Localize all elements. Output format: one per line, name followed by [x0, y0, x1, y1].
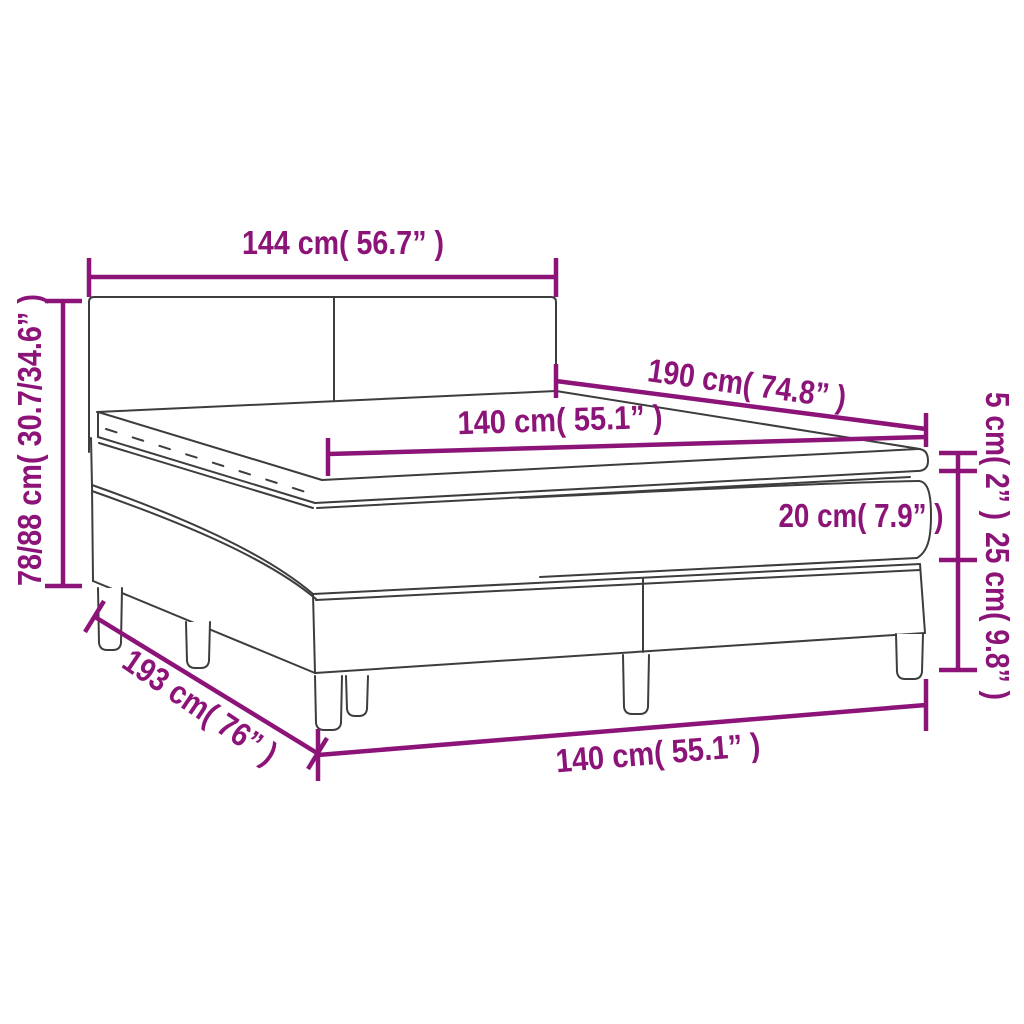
dimension-diagram: 144 cm( 56.7” ) 78/88 cm( 30.7/34.6” ) 1… [0, 0, 1024, 1024]
base-foot-bottom-edge [315, 633, 925, 673]
dim-line-right-stack [939, 453, 977, 670]
topper-zipper-seam [106, 429, 312, 494]
dimension-labels: 144 cm( 56.7” ) 78/88 cm( 30.7/34.6” ) 1… [11, 224, 1016, 779]
dim-line-mattress-width-top [328, 437, 926, 476]
bed-diagram-canvas: 144 cm( 56.7” ) 78/88 cm( 30.7/34.6” ) 1… [0, 0, 1024, 1024]
base-near-top-piping [92, 491, 316, 599]
label-overall-height: 78/88 cm( 30.7/34.6” ) [11, 294, 48, 586]
topper-near-bottom-edge [98, 437, 315, 503]
base-foot-left-edge [313, 594, 315, 673]
leg-foot-middle [623, 655, 649, 714]
topper-right-end-cap [917, 449, 928, 471]
base-foot-top-edge [313, 564, 920, 594]
base-left-edge [92, 486, 93, 581]
dim-line-headboard-width [89, 258, 556, 297]
label-mattress-height: 20 cm( 7.9” ) [779, 497, 944, 534]
base-near-top-edge [92, 485, 313, 594]
label-mattress-width-top: 140 cm( 55.1” ) [457, 398, 663, 441]
base-foot-top-piping [316, 570, 920, 600]
topper-near-top-edge [98, 412, 322, 480]
leg-head-mid [186, 622, 210, 668]
base-right-edge [920, 564, 925, 633]
leg-foot-right [896, 634, 923, 679]
mattress-left-edge [91, 438, 92, 486]
label-topper-height: 5 cm( 2” ) [979, 392, 1016, 520]
dim-line-overall-height [45, 301, 82, 586]
leg-foot-left-rear [346, 676, 368, 716]
label-headboard-width: 144 cm( 56.7” ) [242, 224, 444, 261]
leg-foot-left [315, 676, 342, 730]
label-base-height: 25 cm( 9.8” ) [979, 532, 1016, 700]
